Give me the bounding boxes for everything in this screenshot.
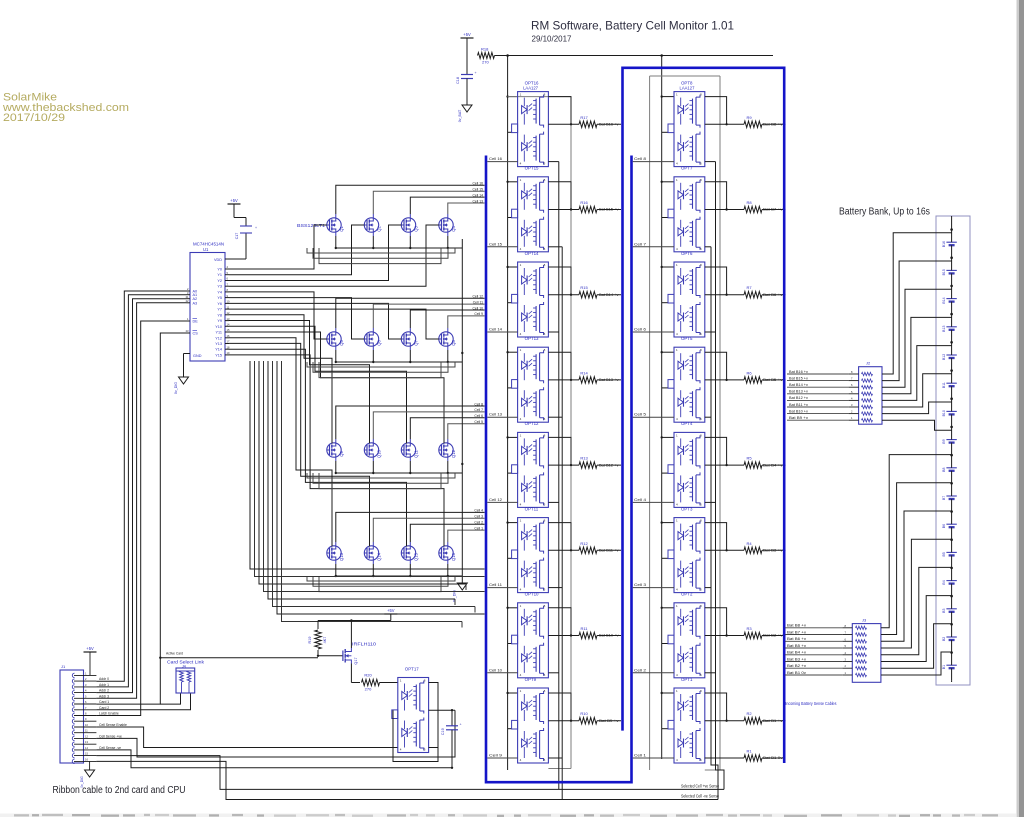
svg-text:OPT9: OPT9: [525, 677, 537, 682]
svg-text:Cell 15: Cell 15: [489, 242, 502, 246]
svg-text:R18: R18: [481, 47, 489, 52]
svg-text:R10: R10: [580, 711, 588, 716]
svg-text:Q6: Q6: [377, 340, 382, 346]
svg-text:270: 270: [365, 687, 372, 692]
svg-text:OPT1: OPT1: [681, 677, 693, 682]
svg-text:R16: R16: [580, 200, 588, 205]
svg-text:Latch Enable: Latch Enable: [99, 712, 119, 716]
svg-text:OPT12: OPT12: [525, 421, 539, 426]
svg-text:Y5: Y5: [217, 296, 222, 300]
svg-text:Incoming Battery Sense Cables: Incoming Battery Sense Cables: [785, 701, 836, 706]
svg-text:B6: B6: [942, 524, 946, 528]
svg-text:B12: B12: [942, 354, 946, 360]
svg-text:+5V: +5V: [230, 198, 238, 203]
svg-text:Cell 14: Cell 14: [472, 193, 483, 197]
svg-text:Y0: Y0: [217, 268, 222, 272]
svg-text:B15: B15: [942, 269, 946, 275]
svg-text:Bat B1 0v: Bat B1 0v: [763, 756, 783, 760]
svg-text:Q14: Q14: [377, 552, 382, 561]
svg-text:B9: B9: [942, 439, 946, 443]
svg-text:Y10: Y10: [215, 325, 222, 329]
svg-text:OPT2: OPT2: [681, 592, 693, 597]
svg-text:R20: R20: [364, 673, 372, 678]
svg-text:LAA127: LAA127: [523, 85, 539, 90]
svg-text:VDD: VDD: [214, 258, 222, 262]
svg-text:OPT4: OPT4: [681, 421, 693, 426]
svg-text:B10: B10: [942, 410, 946, 416]
svg-text:Y8: Y8: [217, 313, 222, 317]
svg-text:Bat B14 +v: Bat B14 +v: [789, 383, 808, 387]
svg-text:Q4: Q4: [451, 226, 456, 232]
svg-text:Cell 12: Cell 12: [489, 498, 502, 502]
svg-text:Cell 4: Cell 4: [634, 498, 646, 502]
svg-text:Bat B5 +v: Bat B5 +v: [787, 644, 806, 648]
svg-text:Y3: Y3: [217, 285, 222, 289]
svg-text:Cell 10: Cell 10: [489, 668, 502, 672]
svg-text:Bat B14 +v: Bat B14 +v: [599, 293, 619, 297]
svg-text:Y4: Y4: [217, 290, 222, 294]
svg-text:Cell 5: Cell 5: [474, 420, 483, 424]
svg-text:Cell 15: Cell 15: [472, 188, 483, 192]
svg-text:Cell 8: Cell 8: [474, 402, 483, 406]
svg-text:Cell 4: Cell 4: [474, 509, 483, 513]
svg-text:Bat B2 +v: Bat B2 +v: [787, 664, 806, 668]
svg-text:B14: B14: [942, 297, 946, 303]
svg-text:Y6: Y6: [217, 302, 222, 306]
svg-text:DE: DE: [193, 320, 199, 324]
svg-text:R2: R2: [746, 711, 752, 716]
svg-text:R11: R11: [580, 626, 588, 631]
svg-text:Cell 3: Cell 3: [634, 583, 646, 587]
svg-text:Cell 1: Cell 1: [634, 754, 646, 758]
svg-text:Bat B16 +v: Bat B16 +v: [599, 123, 619, 127]
svg-text:Q17: Q17: [354, 657, 358, 664]
svg-text:Cell 8: Cell 8: [634, 157, 646, 161]
svg-text:CS: CS: [193, 332, 199, 336]
svg-text:OPT13: OPT13: [525, 336, 539, 341]
svg-text:Bat B2 +v: Bat B2 +v: [763, 634, 783, 638]
svg-text:Active Card: Active Card: [166, 652, 183, 656]
svg-text:Y11: Y11: [216, 331, 222, 335]
svg-text:Cell 11: Cell 11: [489, 583, 502, 587]
svg-text:Bat B16 +v: Bat B16 +v: [789, 370, 808, 374]
svg-text:OPT17: OPT17: [405, 666, 419, 671]
svg-text:2017/10/29: 2017/10/29: [3, 112, 65, 124]
svg-text:B16: B16: [942, 241, 946, 247]
svg-text:Y14: Y14: [215, 348, 222, 352]
svg-text:Bat B8 +v: Bat B8 +v: [787, 624, 806, 628]
svg-text:29/10/2017: 29/10/2017: [532, 33, 572, 43]
svg-text:Bat B9 +v: Bat B9 +v: [789, 416, 808, 420]
svg-text:Bat B3 +v: Bat B3 +v: [763, 549, 783, 553]
svg-text:Selected Cell +ve Sense: Selected Cell +ve Sense: [681, 784, 720, 789]
svg-text:OPT14: OPT14: [525, 251, 539, 256]
svg-text:Addr 2: Addr 2: [99, 689, 109, 693]
svg-text:Card 1: Card 1: [99, 700, 109, 704]
svg-text:Q1: Q1: [339, 226, 344, 232]
svg-text:Q3: Q3: [414, 226, 419, 232]
svg-text:+5V: +5V: [387, 608, 395, 613]
svg-text:0v_DIG: 0v_DIG: [80, 776, 84, 788]
svg-text:B8: B8: [942, 468, 946, 472]
svg-text:Addr 0: Addr 0: [99, 677, 109, 681]
svg-text:C17: C17: [235, 233, 239, 240]
svg-text:OPT6: OPT6: [681, 251, 693, 256]
svg-text:Bat B15 +v: Bat B15 +v: [789, 376, 808, 380]
svg-text:Cell 11: Cell 11: [473, 300, 483, 304]
svg-text:Cell Sense +ve: Cell Sense +ve: [99, 734, 122, 738]
svg-text:R14: R14: [580, 370, 588, 375]
svg-text:R5: R5: [746, 456, 752, 461]
svg-text:Bat B1 +v: Bat B1 +v: [763, 719, 783, 723]
svg-text:Addr 1: Addr 1: [99, 683, 109, 687]
svg-text:Cell 1: Cell 1: [474, 526, 483, 530]
svg-text:Cell 9: Cell 9: [474, 312, 483, 316]
svg-text:Cell 13: Cell 13: [472, 199, 483, 203]
svg-text:OPT11: OPT11: [525, 506, 539, 511]
svg-text:Battery Bank, Up to 16s: Battery Bank, Up to 16s: [839, 207, 930, 218]
svg-text:Y9: Y9: [217, 319, 222, 323]
svg-text:Bat B10 +v: Bat B10 +v: [599, 634, 619, 638]
svg-text:Bat B11 +v: Bat B11 +v: [789, 403, 808, 407]
svg-text:Bat B13 +v: Bat B13 +v: [599, 378, 619, 382]
svg-text:Selected Cell -ve Sense: Selected Cell -ve Sense: [681, 794, 720, 799]
svg-text:Card Select Link: Card Select Link: [167, 660, 205, 665]
svg-text:B7: B7: [942, 496, 946, 500]
svg-text:Q11: Q11: [414, 450, 419, 458]
svg-text:Cell 6: Cell 6: [474, 414, 483, 418]
svg-text:Bat B7 +v: Bat B7 +v: [787, 630, 806, 634]
svg-text:Bat B6 +v: Bat B6 +v: [787, 637, 806, 641]
svg-text:R15: R15: [580, 285, 588, 290]
svg-text:Bat B4 +v: Bat B4 +v: [763, 463, 783, 467]
svg-text:Cell 13: Cell 13: [489, 413, 502, 417]
svg-text:OPT10: OPT10: [525, 592, 539, 597]
svg-text:Cell 14: Cell 14: [489, 328, 502, 332]
svg-text:Bat B13 +v: Bat B13 +v: [789, 390, 808, 394]
svg-text:Y7: Y7: [217, 308, 222, 312]
svg-text:Bat B8 +v: Bat B8 +v: [763, 123, 783, 127]
svg-text:Y13: Y13: [215, 342, 222, 346]
svg-text:RM Software, Battery Cell Moni: RM Software, Battery Cell Monitor 1.01: [531, 19, 734, 33]
svg-text:OPT3: OPT3: [681, 506, 693, 511]
svg-text:Bat B12 +v: Bat B12 +v: [789, 396, 808, 400]
svg-text:Bat B9 +v: Bat B9 +v: [599, 719, 619, 723]
svg-text:+5V: +5V: [86, 646, 94, 651]
svg-text:Y12: Y12: [215, 336, 222, 340]
svg-text:Bat B7 +v: Bat B7 +v: [763, 208, 783, 212]
svg-text:R19: R19: [308, 637, 312, 644]
svg-text:Bat B3 +v: Bat B3 +v: [787, 657, 806, 661]
svg-text:Cell 3: Cell 3: [474, 515, 483, 519]
svg-text:Bat B15 +v: Bat B15 +v: [599, 208, 619, 212]
svg-text:Bat B4 +v: Bat B4 +v: [787, 651, 806, 655]
svg-text:Cell 2: Cell 2: [474, 521, 483, 525]
svg-text:Q7: Q7: [414, 340, 419, 346]
svg-text:Q12: Q12: [451, 449, 456, 458]
svg-text:R13: R13: [580, 456, 588, 461]
svg-text:Q2: Q2: [377, 226, 382, 232]
svg-text:Cell 6: Cell 6: [634, 328, 646, 332]
svg-text:R12: R12: [580, 541, 588, 546]
svg-text:Ribbon cable to 2nd card and C: Ribbon cable to 2nd card and CPU: [53, 785, 186, 796]
svg-text:Bat B12 +v: Bat B12 +v: [599, 463, 619, 467]
svg-text:R3: R3: [746, 626, 752, 631]
svg-text:B13: B13: [942, 326, 946, 332]
svg-text:Addr 3: Addr 3: [99, 694, 109, 698]
svg-text:Cell 7: Cell 7: [474, 408, 483, 412]
svg-text:R8: R8: [746, 200, 752, 205]
svg-text:B2: B2: [942, 637, 946, 641]
svg-text:Q8: Q8: [451, 340, 456, 346]
svg-text:B11: B11: [942, 382, 946, 388]
svg-text:IRFLH110: IRFLH110: [352, 641, 377, 646]
svg-text:R1: R1: [746, 749, 752, 754]
svg-text:OPT7: OPT7: [681, 166, 693, 171]
svg-text:+: +: [460, 722, 462, 726]
svg-text:Cell 16: Cell 16: [489, 157, 502, 161]
svg-text:+: +: [475, 71, 477, 75]
svg-text:+5V: +5V: [463, 32, 471, 37]
svg-text:A3: A3: [193, 301, 198, 305]
svg-text:R6: R6: [746, 370, 752, 375]
svg-text:Bat B11 +v: Bat B11 +v: [599, 549, 619, 553]
svg-text:MC74HC4514N: MC74HC4514N: [193, 242, 224, 247]
svg-text:Cell 7: Cell 7: [634, 242, 646, 246]
svg-text:Cell Sense -ve: Cell Sense -ve: [99, 746, 121, 750]
svg-text:Cell 9: Cell 9: [489, 754, 502, 758]
svg-text:Cell 10: Cell 10: [472, 306, 483, 310]
svg-text:B3: B3: [942, 609, 946, 613]
svg-text:Q10: Q10: [377, 449, 382, 458]
svg-text:R17: R17: [580, 115, 588, 120]
svg-text:Cell 5: Cell 5: [634, 413, 646, 417]
svg-text:B4: B4: [942, 580, 946, 584]
svg-text:R7: R7: [746, 285, 752, 290]
svg-text:OPT15: OPT15: [525, 166, 539, 171]
svg-text:Q9: Q9: [339, 451, 344, 457]
svg-text:B1: B1: [942, 665, 946, 669]
svg-text:Cell Sense Enable: Cell Sense Enable: [99, 723, 127, 727]
svg-text:C18: C18: [456, 77, 460, 84]
svg-text:Y2: Y2: [217, 279, 222, 283]
svg-text:+: +: [255, 226, 257, 230]
svg-text:Bat B6 +v: Bat B6 +v: [763, 293, 783, 297]
svg-text:Q5: Q5: [339, 340, 344, 346]
svg-text:Cell 16: Cell 16: [472, 182, 483, 186]
svg-text:R4: R4: [746, 541, 752, 546]
svg-text:B5: B5: [942, 552, 946, 556]
svg-text:GND: GND: [193, 354, 202, 358]
svg-text:4K7: 4K7: [323, 637, 327, 644]
svg-text:OPT5: OPT5: [681, 336, 693, 341]
svg-text:C19: C19: [441, 728, 445, 735]
svg-text:LAA127: LAA127: [680, 85, 696, 90]
svg-text:Cell 12: Cell 12: [472, 295, 483, 299]
svg-text:Q15: Q15: [414, 552, 419, 561]
svg-text:Cell 2: Cell 2: [634, 668, 646, 672]
svg-text:0v_BAT: 0v_BAT: [458, 109, 462, 122]
svg-text:Q16: Q16: [451, 552, 456, 561]
svg-text:Q13: Q13: [339, 552, 344, 561]
svg-text:0v_DIG: 0v_DIG: [174, 382, 178, 394]
svg-text:Bat B5 +v: Bat B5 +v: [763, 378, 783, 382]
svg-text:Bat B10 +v: Bat B10 +v: [789, 409, 808, 413]
svg-text:R9: R9: [746, 115, 752, 120]
svg-text:Y15: Y15: [215, 353, 222, 357]
svg-text:Card 2: Card 2: [99, 706, 109, 710]
svg-text:U1: U1: [203, 247, 209, 252]
svg-text:270: 270: [482, 60, 489, 65]
svg-text:Bat B1 0v: Bat B1 0v: [787, 671, 806, 675]
svg-text:Y1: Y1: [217, 273, 222, 277]
